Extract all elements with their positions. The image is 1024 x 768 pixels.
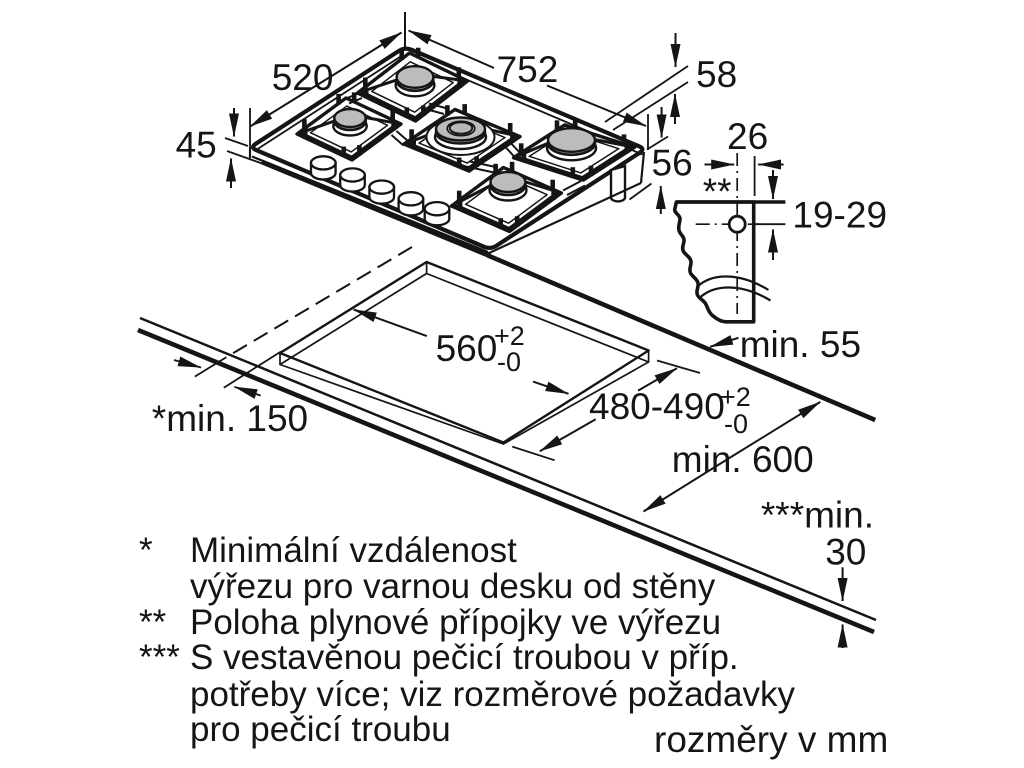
svg-text:***min.: ***min. (761, 495, 874, 536)
svg-text:30: 30 (825, 532, 866, 573)
svg-text:min. 600: min. 600 (672, 439, 814, 480)
svg-text:potřeby více; viz rozměrové po: potřeby více; viz rozměrové požadavky (190, 675, 795, 714)
svg-text:480-490: 480-490 (589, 386, 725, 427)
svg-text:560: 560 (436, 328, 498, 369)
svg-text:520: 520 (272, 57, 334, 98)
svg-text:56: 56 (652, 142, 693, 183)
svg-text:58: 58 (696, 54, 737, 95)
svg-text:752: 752 (497, 49, 559, 90)
svg-text:S vestavěnou pečicí troubou v: S vestavěnou pečicí troubou v příp. (190, 638, 739, 677)
svg-text:min. 55: min. 55 (740, 324, 861, 365)
svg-text:-0: -0 (497, 347, 521, 377)
svg-text:*min. 150: *min. 150 (152, 398, 308, 439)
svg-text:**: ** (703, 171, 732, 212)
svg-text:*: * (139, 531, 153, 570)
svg-text:**: ** (139, 603, 167, 642)
svg-text:Poloha plynové přípojky ve výř: Poloha plynové přípojky ve výřezu (190, 603, 721, 642)
svg-text:***: *** (139, 638, 180, 677)
svg-text:-0: -0 (724, 409, 748, 439)
svg-text:rozměry v mm: rozměry v mm (654, 719, 888, 760)
svg-text:+2: +2 (720, 382, 751, 412)
svg-text:26: 26 (727, 116, 768, 157)
svg-text:45: 45 (176, 125, 217, 166)
svg-text:19-29: 19-29 (792, 195, 887, 236)
svg-text:pro pečicí troubu: pro pečicí troubu (190, 710, 451, 749)
svg-text:výřezu pro varnou desku od stě: výřezu pro varnou desku od stěny (190, 567, 716, 606)
svg-text:Minimální vzdálenost: Minimální vzdálenost (190, 531, 517, 570)
